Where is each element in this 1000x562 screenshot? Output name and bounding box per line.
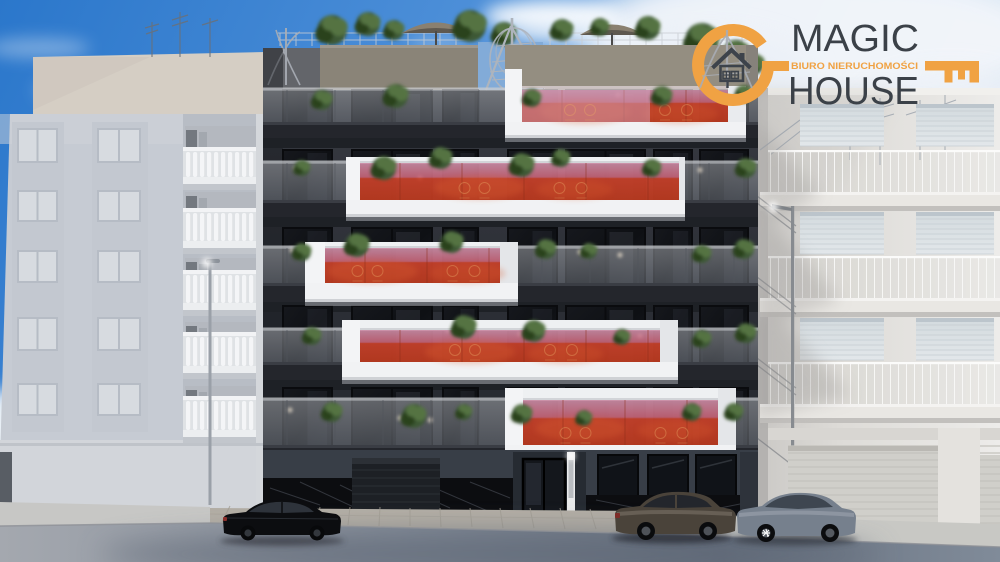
- svg-text:MAGIC: MAGIC: [791, 18, 919, 60]
- svg-text:HOUSE: HOUSE: [788, 70, 919, 113]
